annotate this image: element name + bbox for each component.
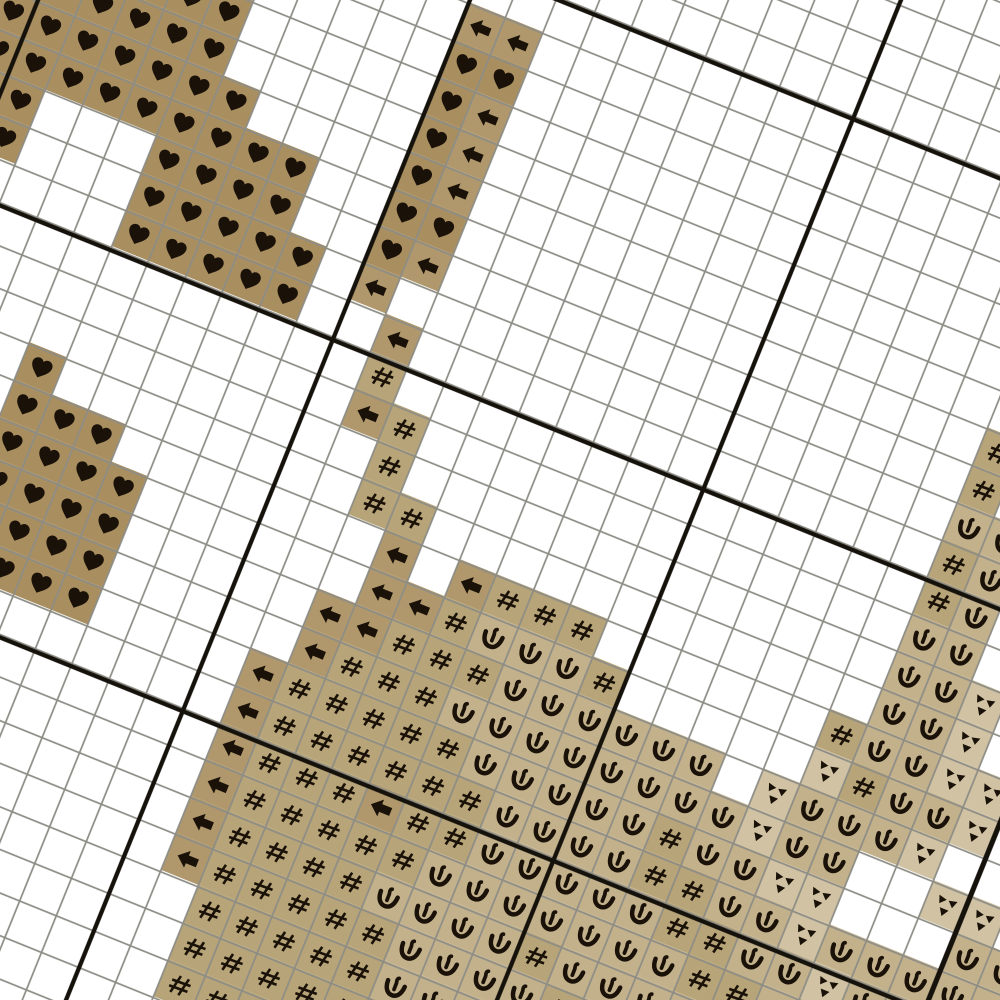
trefoil-icon	[963, 902, 1000, 939]
anchor-icon	[875, 694, 912, 731]
heart-icon	[58, 580, 95, 617]
hash-icon	[540, 990, 577, 1000]
arrow-icon	[468, 98, 505, 135]
arrow-icon	[296, 633, 333, 670]
cross-stitch-chart	[0, 0, 1000, 1000]
hash-icon	[370, 663, 407, 700]
heart-icon	[282, 239, 319, 276]
anchor-icon	[465, 960, 502, 997]
anchor-icon	[511, 633, 548, 670]
anchor-icon	[748, 902, 785, 939]
anchor-icon	[540, 775, 577, 812]
hash-icon	[303, 722, 340, 759]
heart-icon	[7, 387, 44, 424]
heart-icon	[483, 61, 520, 98]
heart-icon	[238, 135, 275, 172]
heart-icon	[149, 142, 186, 179]
heart-icon	[0, 424, 29, 461]
anchor-icon	[406, 893, 443, 930]
anchor-icon	[444, 693, 481, 730]
hash-icon	[437, 603, 474, 640]
anchor-icon	[548, 648, 585, 685]
heart-icon	[208, 209, 245, 246]
hash-icon	[333, 648, 370, 685]
anchor-icon	[443, 908, 480, 945]
hash-icon	[386, 410, 423, 447]
heart-icon	[260, 187, 297, 224]
anchor-icon	[778, 827, 815, 864]
anchor-icon	[570, 700, 607, 737]
arrow-icon	[438, 173, 475, 210]
heart-icon	[51, 491, 88, 528]
hash-icon	[317, 900, 354, 937]
anchor-icon	[391, 930, 428, 967]
anchor-icon	[948, 939, 985, 976]
arrow-icon	[244, 655, 281, 692]
heart-icon	[156, 231, 193, 268]
hash-icon	[356, 484, 393, 521]
hash-icon	[287, 974, 324, 1000]
anchor-icon	[882, 783, 919, 820]
hash-icon	[823, 716, 860, 753]
hash-icon	[191, 892, 228, 929]
anchor-icon	[897, 746, 934, 783]
heart-icon	[81, 416, 118, 453]
trefoil-icon	[756, 775, 793, 812]
hash-icon	[674, 872, 711, 909]
heart-icon	[68, 23, 105, 60]
anchor-icon	[704, 797, 741, 834]
anchor-icon	[950, 509, 987, 546]
hash-icon	[310, 811, 347, 848]
hash-icon	[407, 678, 444, 715]
heart-icon	[29, 439, 66, 476]
anchor-icon	[830, 805, 867, 842]
anchor-icon	[518, 723, 555, 760]
hash-icon	[251, 744, 288, 781]
hash-icon	[399, 804, 436, 841]
hash-icon	[920, 583, 957, 620]
anchor-icon	[466, 745, 503, 782]
hash-icon	[422, 641, 459, 678]
hash-icon	[980, 434, 1000, 471]
anchor-icon	[711, 887, 748, 924]
heart-icon	[14, 476, 51, 513]
heart-icon	[171, 194, 208, 231]
anchor-icon	[985, 954, 1000, 991]
anchor-icon	[970, 992, 1000, 1000]
anchor-icon	[607, 931, 644, 968]
trefoil-icon	[949, 724, 986, 761]
hash-icon	[332, 863, 369, 900]
hash-icon	[266, 707, 303, 744]
trefoil-icon	[763, 865, 800, 902]
anchor-icon	[689, 835, 726, 872]
heart-icon	[1, 82, 38, 119]
heart-icon	[164, 105, 201, 142]
arrow-icon	[214, 729, 251, 766]
arrow-icon	[362, 789, 399, 826]
anchor-icon	[600, 842, 637, 879]
heart-icon	[401, 158, 438, 195]
anchor-icon	[577, 790, 614, 827]
anchor-icon	[615, 805, 652, 842]
hash-icon	[288, 759, 325, 796]
heart-icon	[120, 1, 157, 38]
anchor-icon	[644, 946, 681, 983]
hash-icon	[228, 907, 265, 944]
pattern-cells	[0, 0, 1000, 1000]
anchor-icon	[793, 790, 830, 827]
hash-icon	[281, 670, 318, 707]
heart-icon	[66, 454, 103, 491]
anchor-icon	[369, 878, 406, 915]
heart-icon	[223, 172, 260, 209]
hash-icon	[250, 959, 287, 996]
hash-icon	[637, 857, 674, 894]
hash-icon	[371, 447, 408, 484]
hash-icon	[161, 966, 198, 1000]
anchor-icon	[503, 760, 540, 797]
anchor-icon	[458, 871, 495, 908]
arrow-icon	[378, 321, 415, 358]
heart-icon	[0, 0, 31, 30]
anchor-icon	[927, 672, 964, 709]
hash-icon	[364, 358, 401, 395]
hash-icon	[265, 922, 302, 959]
heart-icon	[201, 120, 238, 157]
heart-icon	[53, 60, 90, 97]
trefoil-icon	[808, 753, 845, 790]
anchor-icon	[488, 797, 525, 834]
hash-icon	[243, 870, 280, 907]
hash-icon	[377, 752, 414, 789]
arrow-icon	[452, 566, 489, 603]
trefoil-icon	[926, 887, 963, 924]
heart-icon	[186, 157, 223, 194]
heart-icon	[157, 16, 194, 53]
hash-icon	[318, 685, 355, 722]
heart-icon	[36, 528, 73, 565]
hash-icon	[517, 938, 554, 975]
hash-icon	[436, 819, 473, 856]
heart-icon	[119, 216, 156, 253]
anchor-icon	[555, 738, 592, 775]
trefoil-icon	[956, 813, 993, 850]
hash-icon	[258, 833, 295, 870]
anchor-icon	[942, 635, 979, 672]
hash-icon	[273, 796, 310, 833]
heart-icon	[193, 246, 230, 283]
anchor-icon	[629, 768, 666, 805]
heart-icon	[179, 68, 216, 105]
arrow-icon	[453, 136, 490, 173]
hash-icon	[340, 737, 377, 774]
heart-icon	[194, 31, 231, 68]
anchor-icon	[570, 916, 607, 953]
heart-icon	[446, 46, 483, 83]
hash-icon	[221, 818, 258, 855]
anchor-icon	[896, 962, 933, 999]
anchor-icon	[733, 939, 770, 976]
hash-icon	[236, 781, 273, 818]
hash-icon	[325, 774, 362, 811]
anchor-icon	[481, 708, 518, 745]
heart-icon	[134, 179, 171, 216]
arrow-icon	[348, 611, 385, 648]
hash-icon	[429, 730, 466, 767]
anchor-icon	[987, 524, 1000, 561]
anchor-icon	[421, 856, 458, 893]
trefoil-icon	[934, 761, 971, 798]
anchor-icon	[592, 753, 629, 790]
hash-icon	[845, 768, 882, 805]
heart-icon	[127, 90, 164, 127]
arrow-icon	[400, 588, 437, 625]
anchor-icon	[480, 923, 517, 960]
anchor-icon	[592, 968, 629, 1000]
hash-icon	[198, 981, 235, 1000]
hash-icon	[206, 855, 243, 892]
arrow-icon	[408, 247, 445, 284]
hash-icon	[652, 820, 689, 857]
anchor-icon	[533, 685, 570, 722]
hash-icon	[489, 581, 526, 618]
arrow-icon	[378, 536, 415, 573]
trefoil-icon	[800, 880, 837, 917]
anchor-icon	[562, 827, 599, 864]
anchor-icon	[726, 850, 763, 887]
anchor-icon	[933, 977, 970, 1000]
hash-icon	[563, 611, 600, 648]
trefoil-icon	[741, 812, 778, 849]
hash-icon	[355, 700, 392, 737]
arrow-icon	[199, 766, 236, 803]
hash-icon	[213, 944, 250, 981]
anchor-icon	[629, 983, 666, 1000]
trefoil-icon	[807, 969, 844, 1000]
anchor-icon	[585, 879, 622, 916]
heart-icon	[431, 83, 468, 120]
heart-icon	[423, 210, 460, 247]
anchor-icon	[844, 984, 881, 1000]
anchor-icon	[859, 947, 896, 984]
anchor-icon	[890, 657, 927, 694]
heart-icon	[216, 83, 253, 120]
heart-icon	[30, 8, 67, 45]
hash-icon	[385, 626, 422, 663]
heart-icon	[245, 224, 282, 261]
heart-icon	[267, 276, 304, 313]
arrow-icon	[311, 596, 348, 633]
anchor-icon	[622, 894, 659, 931]
anchor-icon	[912, 709, 949, 746]
trefoil-icon	[785, 917, 822, 954]
arrow-icon	[229, 692, 266, 729]
hash-icon	[659, 909, 696, 946]
trefoil-icon	[904, 835, 941, 872]
anchor-icon	[607, 715, 644, 752]
anchor-icon	[957, 598, 994, 635]
heart-icon	[15, 45, 52, 82]
heart-icon	[416, 121, 453, 158]
hash-icon	[354, 915, 391, 952]
trefoil-icon	[971, 776, 1000, 813]
trefoil-icon	[964, 687, 1000, 724]
hash-icon	[176, 929, 213, 966]
heart-icon	[386, 195, 423, 232]
heart-icon	[275, 150, 312, 187]
hash-icon	[280, 885, 317, 922]
anchor-icon	[525, 812, 562, 849]
hash-icon	[339, 952, 376, 989]
hash-icon	[965, 472, 1000, 509]
anchor-icon	[532, 901, 569, 938]
arrow-icon	[356, 269, 393, 306]
arrow-icon	[169, 840, 206, 877]
arrow-icon	[363, 573, 400, 610]
hash-icon	[347, 826, 384, 863]
anchor-icon	[495, 886, 532, 923]
anchor-icon	[474, 618, 511, 655]
hash-icon	[696, 924, 733, 961]
heart-icon	[21, 565, 58, 602]
heart-icon	[142, 53, 179, 90]
anchor-icon	[860, 731, 897, 768]
heart-icon	[83, 0, 120, 23]
hash-icon	[718, 976, 755, 1000]
hash-icon	[451, 782, 488, 819]
hash-icon	[414, 767, 451, 804]
anchor-icon	[413, 982, 450, 1000]
heart-icon	[90, 75, 127, 112]
anchor-icon	[496, 670, 533, 707]
pattern-grid	[0, 0, 1000, 1000]
arrow-icon	[461, 9, 498, 46]
arrow-icon	[349, 395, 386, 432]
heart-icon	[44, 402, 81, 439]
heart-icon	[209, 0, 246, 31]
hash-icon	[392, 715, 429, 752]
heart-icon	[73, 543, 110, 580]
anchor-icon	[510, 849, 547, 886]
hash-icon	[935, 546, 972, 583]
anchor-icon	[547, 864, 584, 901]
anchor-icon	[770, 954, 807, 991]
anchor-icon	[667, 782, 704, 819]
hash-icon	[384, 841, 421, 878]
hash-icon	[324, 989, 361, 1000]
hash-icon	[526, 596, 563, 633]
anchor-icon	[905, 620, 942, 657]
arrow-icon	[498, 24, 535, 61]
anchor-icon	[822, 932, 859, 969]
anchor-icon	[428, 945, 465, 982]
hash-icon	[393, 499, 430, 536]
hash-icon	[295, 848, 332, 885]
arrow-icon	[184, 803, 221, 840]
heart-icon	[103, 469, 140, 506]
anchor-icon	[503, 975, 540, 1000]
anchor-icon	[555, 953, 592, 990]
heart-icon	[371, 232, 408, 269]
heart-icon	[230, 261, 267, 298]
anchor-icon	[682, 745, 719, 782]
anchor-icon	[972, 561, 1000, 598]
hash-icon	[681, 961, 718, 998]
heart-icon	[22, 349, 59, 386]
heart-icon	[88, 506, 125, 543]
anchor-icon	[644, 730, 681, 767]
anchor-icon	[815, 842, 852, 879]
hash-icon	[459, 655, 496, 692]
heart-icon	[105, 38, 142, 75]
hash-icon	[302, 937, 339, 974]
anchor-icon	[919, 798, 956, 835]
anchor-icon	[376, 967, 413, 1000]
hash-icon	[585, 663, 622, 700]
heart-icon	[0, 513, 37, 550]
anchor-icon	[867, 820, 904, 857]
anchor-icon	[473, 834, 510, 871]
heart-icon	[0, 119, 23, 156]
